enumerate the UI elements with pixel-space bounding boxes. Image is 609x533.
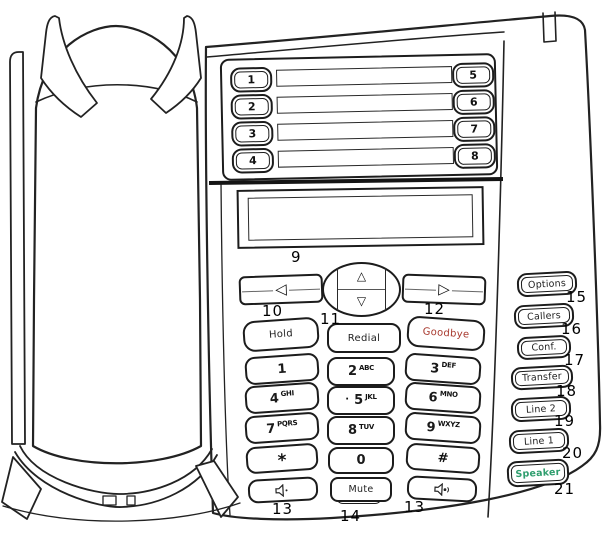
down-arrow-icon: ▽	[357, 295, 366, 307]
dial-key-1-digit: 1	[277, 361, 287, 377]
star-icon: *	[277, 450, 287, 471]
nav-left-key[interactable]: ◁	[239, 274, 324, 306]
line1-key[interactable]: Line 1	[508, 427, 569, 454]
prog-key-1[interactable]: 1	[230, 67, 273, 93]
callers-key-label: Callers	[527, 310, 561, 323]
volume-up-icon	[433, 482, 452, 496]
programmable-keys-panel: 1 5 2 6 3 7 4 8	[220, 53, 498, 181]
prog-key-4[interactable]: 4	[232, 148, 275, 174]
callout-16: 16	[561, 320, 582, 338]
hold-key[interactable]: Hold	[242, 316, 320, 352]
pound-icon: #	[437, 451, 449, 467]
dial-key-5-letters: JKL	[365, 393, 377, 401]
callout-21: 21	[554, 480, 575, 498]
callout-20: 20	[562, 444, 583, 462]
mute-key[interactable]: Mute	[330, 477, 392, 502]
hold-key-label: Hold	[269, 328, 294, 341]
prog-key-3[interactable]: 3	[231, 121, 274, 147]
dial-key-7-digit: 7	[266, 421, 276, 437]
prog-key-5-label: 5	[456, 66, 490, 84]
prog-key-1-label: 1	[234, 71, 268, 89]
prog-key-7[interactable]: 7	[453, 116, 496, 142]
prog-key-4-label: 4	[236, 152, 270, 170]
callout-13-left: 13	[272, 500, 293, 518]
dial-key-6-letters: MNO	[440, 390, 458, 399]
dial-key-pound[interactable]: #	[405, 442, 481, 474]
callout-17: 17	[564, 351, 585, 369]
dial-key-9[interactable]: 9 WXYZ	[404, 411, 482, 444]
prog-key-5[interactable]: 5	[452, 62, 495, 88]
lcd-display	[237, 186, 485, 249]
conf-key-label: Conf.	[531, 341, 557, 353]
label-strip	[277, 120, 453, 141]
prog-key-2-label: 2	[235, 98, 269, 116]
options-key-label: Options	[528, 278, 567, 291]
handset-illustration	[2, 16, 240, 521]
left-arrow-icon: ◁	[273, 282, 289, 298]
prog-key-6-label: 6	[457, 93, 491, 111]
callout-9: 9	[291, 248, 302, 266]
dial-key-9-letters: WXYZ	[437, 420, 460, 430]
prog-key-2[interactable]: 2	[231, 94, 274, 120]
redial-key-label: Redial	[348, 333, 380, 344]
callout-19: 19	[554, 412, 575, 430]
dial-key-3-digit: 3	[430, 361, 440, 377]
dial-key-6-digit: 6	[428, 390, 438, 406]
dial-key-0-digit: 0	[356, 453, 365, 468]
prog-key-6[interactable]: 6	[452, 89, 495, 115]
label-strip	[276, 66, 452, 87]
nav-up-down-rect: △ ▽	[337, 268, 386, 309]
dial-key-6[interactable]: 6 MNO	[404, 381, 482, 414]
line1-key-label: Line 1	[524, 435, 555, 448]
dial-key-5-digit: 5	[354, 393, 363, 408]
mute-key-label: Mute	[349, 484, 374, 495]
dial-key-3-letters: DEF	[441, 361, 456, 370]
dial-key-0[interactable]: 0	[328, 447, 394, 474]
dial-key-8[interactable]: 8 TUV	[327, 416, 395, 445]
prog-key-7-label: 7	[457, 120, 491, 138]
callout-14: 14	[340, 507, 361, 525]
callout-10: 10	[262, 302, 283, 320]
dial-key-7[interactable]: 7 PQRS	[244, 411, 320, 444]
dial-key-5-dot: ·	[345, 394, 349, 405]
line2-key-label: Line 2	[526, 403, 557, 416]
dial-key-2-letters: ABC	[359, 364, 374, 372]
dial-key-8-digit: 8	[348, 423, 357, 438]
callout-12: 12	[424, 300, 445, 318]
dial-key-8-letters: TUV	[359, 423, 374, 431]
callout-11: 11	[320, 310, 341, 328]
lcd-screen	[248, 194, 474, 241]
prog-key-8-label: 8	[458, 147, 492, 165]
left-foot	[2, 457, 41, 519]
callout-15: 15	[566, 288, 587, 306]
dial-key-5[interactable]: · 5 JKL	[327, 386, 395, 415]
dial-key-2[interactable]: 2 ABC	[327, 357, 395, 386]
prog-key-3-label: 3	[235, 125, 269, 143]
dial-key-9-digit: 9	[426, 419, 436, 435]
dial-key-4-digit: 4	[269, 391, 279, 407]
goodbye-key[interactable]: Goodbye	[406, 315, 486, 351]
right-arrow-icon: ▷	[436, 282, 452, 298]
dial-key-2-digit: 2	[348, 364, 357, 379]
speaker-key-label: Speaker	[515, 466, 561, 479]
handset-mic-slot	[103, 496, 116, 505]
dial-key-4[interactable]: 4 GHI	[244, 381, 320, 414]
dial-key-4-letters: GHI	[280, 389, 294, 398]
dial-key-7-letters: PQRS	[277, 419, 298, 428]
callout-13-right: 13	[404, 498, 425, 516]
dial-key-3[interactable]: 3 DEF	[404, 352, 482, 385]
goodbye-key-label: Goodbye	[422, 326, 470, 340]
callout-18: 18	[556, 382, 577, 400]
handset-mic-slot	[127, 496, 135, 505]
label-strip	[277, 93, 453, 114]
up-arrow-icon: △	[357, 270, 366, 282]
label-strip	[278, 147, 454, 168]
volume-down-icon	[274, 483, 293, 497]
prog-key-8[interactable]: 8	[454, 143, 497, 169]
phone-diagram: 1 5 2 6 3 7 4 8 9 ◁ ▷ △	[0, 0, 609, 533]
nav-up-down-key[interactable]: △ ▽	[322, 262, 401, 317]
dial-key-star[interactable]: *	[245, 443, 319, 475]
dial-key-1[interactable]: 1	[244, 352, 320, 385]
